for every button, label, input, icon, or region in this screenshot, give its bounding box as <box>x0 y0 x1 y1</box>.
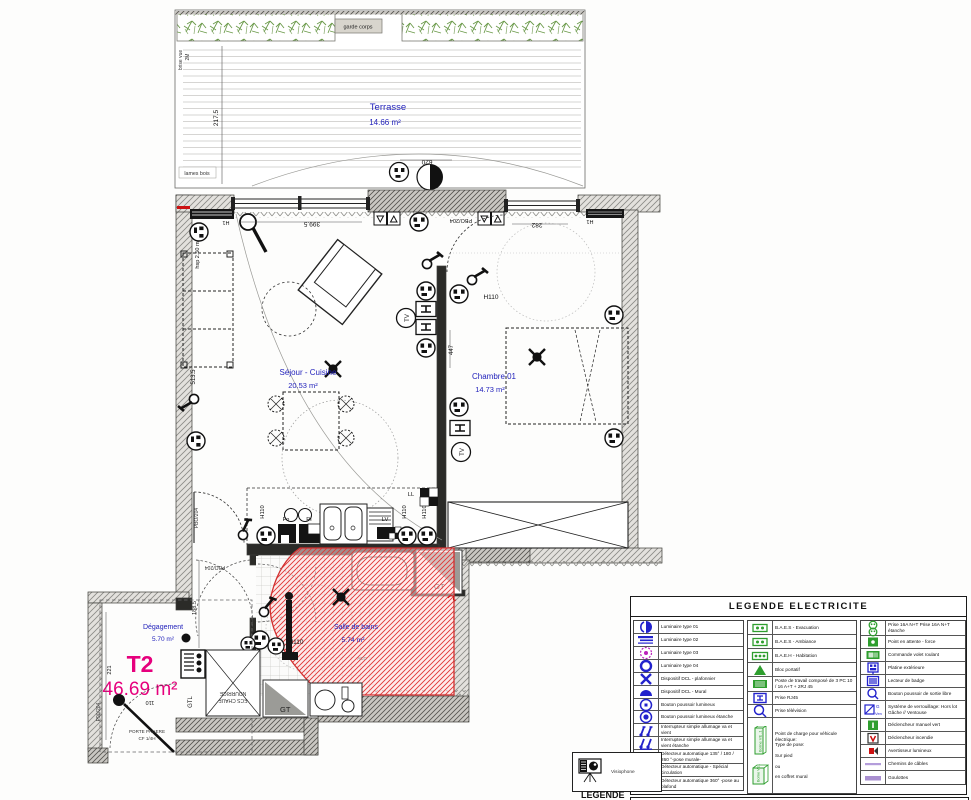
borne-icon: Borne VE .1 Borne VE .1 <box>748 718 773 793</box>
unit-area: 46.69 m² <box>103 679 178 700</box>
room-area-sejour: 20.53 m² <box>288 381 318 390</box>
outlet-sejour-east-1 <box>417 282 435 300</box>
legend-label: Poste de travail composé de 3 PC 10 / 16… <box>773 678 856 689</box>
ecs-label: ECS CHAUF <box>219 697 248 703</box>
door-sejour-degagement <box>194 492 244 543</box>
heater-h1-chambre-label: H1 <box>586 218 593 224</box>
baeh-icon <box>748 649 773 662</box>
volet-switch-chambre <box>478 212 504 225</box>
legend-label: Avertisseur lumineux <box>886 748 933 754</box>
tv-outlet-sejour: TV <box>397 309 416 328</box>
switch-chambre <box>467 268 488 285</box>
svg-text:Borne VE .1: Borne VE .1 <box>758 729 763 751</box>
tv-label-sejour: TV <box>405 314 411 322</box>
gtl-panel: GTL <box>181 650 205 708</box>
room-area-chambre: 14.73 m² <box>475 385 505 394</box>
legend-label: Système de verrouillage: Hors lot Gâche … <box>886 704 965 715</box>
room-area-sdb: 5.74 m² <box>341 637 365 644</box>
gt-box-entry: GT <box>263 680 308 717</box>
legend-row: B.A.E.S - Evacuation <box>748 621 856 635</box>
legend-label: Détecteur automatique 360° -pose au plaf… <box>659 778 743 789</box>
legend-label: Point de charge pour véhiculeélectrique:… <box>773 731 839 780</box>
door-label-pbo-sejour: PBO/204 <box>194 508 200 529</box>
legend-label: Interrupteur simple allumage va et vient <box>659 724 743 735</box>
legend-electricite: LEGENDE ELECTRICITE Luminaire type 01Lum… <box>630 596 967 795</box>
declVert-icon <box>861 719 886 731</box>
sejour-cuisine: H1 399.5 TV Séjour - Cuisine 20.53 m² <box>177 206 443 540</box>
legend-label: Goulottes <box>886 775 910 781</box>
declInc-icon <box>861 732 886 744</box>
outlet-kitchen-2-label: H110 <box>402 505 408 518</box>
baes-icon <box>748 621 773 634</box>
bloc-icon <box>748 663 773 676</box>
window-chambre <box>504 199 580 212</box>
garde-corps-label: garde corps <box>343 25 372 31</box>
outlet-sejour-west-2 <box>187 432 205 450</box>
oven-label: Fo <box>283 517 290 523</box>
window-chambre-pbo: PBO/204 <box>450 217 472 223</box>
rj45-chambre <box>450 421 470 436</box>
outlet-chambre-3 <box>605 429 623 447</box>
chambre: PBO/204 282 H1 H110 Chambre 01 14.73 m² … <box>447 209 628 548</box>
dim-217-5: 217.5 <box>213 109 220 126</box>
acc-label: ACC <box>357 656 367 661</box>
visiophone-label: Visiophone <box>611 770 635 775</box>
switch-kitchen <box>232 516 258 541</box>
lum02-icon <box>634 634 659 646</box>
legend-label: Détecteur automatique 135° / 180 / 260 °… <box>659 751 743 762</box>
outlet-kitchen-3 <box>418 527 436 545</box>
hsp-label: hsp 2.50 m <box>195 241 201 269</box>
porte-paliere-label1: PORTE PALIERE <box>129 729 165 734</box>
porte-paliere-label2: CF 1/4H <box>138 736 155 741</box>
legend-row: Bloc portatif <box>748 663 856 677</box>
door-pbo-bath-label: PBO/204 <box>205 564 226 570</box>
lum03-icon <box>634 647 659 659</box>
outlet-chambre-2 <box>605 306 623 324</box>
wardrobe <box>448 502 628 548</box>
baes-icon <box>748 635 773 648</box>
intSimpleEt-icon <box>634 737 659 749</box>
cmdVolet-icon <box>861 649 886 661</box>
hob-label: PI <box>306 517 312 523</box>
outlet-kitchen-2 <box>398 527 416 545</box>
bp-lumineux-2 <box>268 638 284 654</box>
kitchen-circle <box>282 400 398 516</box>
washing-machine: LL <box>408 488 438 506</box>
planter-left <box>177 14 335 41</box>
armchair <box>298 240 382 325</box>
unit-label: T2 <box>127 651 154 677</box>
outlet-kitchen-3-label: H110 <box>422 505 428 518</box>
room-label-terrasse: Terrasse <box>370 102 406 113</box>
brise-vue-2m: 2M <box>185 54 191 61</box>
room-label-sdb: Salle de bains <box>334 624 378 631</box>
legend-label: Dispositif DCL - Mural <box>659 689 708 695</box>
badge-icon <box>861 675 886 687</box>
legend-row: Goulottes <box>861 771 965 784</box>
legend-label: B.A.E.S - Ambiance <box>773 639 818 645</box>
planter-right <box>402 14 583 41</box>
legend-bottom-word: LEGENDE <box>581 790 625 800</box>
dcl-degagement <box>182 634 191 643</box>
outlet-sejour-east-2 <box>417 339 435 357</box>
bpLumEt-icon <box>634 711 659 723</box>
lames-bois-label: lames bois <box>184 171 210 177</box>
tv-icon <box>748 705 773 717</box>
legend-label: Platine extérieure <box>886 665 926 671</box>
svg-text:Borne VE .1: Borne VE .1 <box>757 764 761 782</box>
lum04-icon <box>634 660 659 672</box>
legend-label: Point en attente - force <box>886 639 937 645</box>
legend-row: Poste de travail composé de 3 PC 10 / 16… <box>748 677 856 692</box>
kitchen: PBO/204 H110 Fo PI H180 LV H110 H110 LL <box>194 488 438 545</box>
rj45-icon <box>748 692 773 704</box>
legend-row: Prise 16A N+T Prise 16A N+T étanche <box>861 621 965 636</box>
room-label-sejour: Séjour - Cuisine <box>280 368 337 377</box>
legend-row: GVenSystème de verrouillage: Hors lot Gâ… <box>861 701 965 719</box>
legend-label: B.A.E.S - Evacuation <box>773 625 821 631</box>
dim-221: 221 <box>107 665 113 674</box>
bed <box>506 328 628 424</box>
sink <box>320 504 367 544</box>
legend-row: Interrupteur simple allumage va et vient… <box>634 737 743 750</box>
dclPlaf-icon <box>634 673 659 685</box>
legend-label: Luminaire type 03 <box>659 650 700 656</box>
svg-text:Ven: Ven <box>875 711 882 716</box>
legend-row: Chemins de câbles <box>861 758 965 771</box>
legend-label: Luminaire type 01 <box>659 624 700 630</box>
gtl-label: GTL <box>188 696 194 708</box>
dishwasher-label: LV <box>382 517 389 523</box>
heater-h1-sejour-label: H1 <box>222 219 229 225</box>
legend-row: B.A.E.H - Habitation <box>748 649 856 663</box>
volet-switch-sejour <box>374 212 400 225</box>
dcl-chambre <box>529 349 545 365</box>
legend-label: Luminaire type 04 <box>659 663 700 669</box>
legend-column-2: B.A.E.S - EvacuationB.A.E.S - AmbianceB.… <box>747 620 857 794</box>
legend-row: Prise télévision <box>748 705 856 718</box>
avert-icon <box>861 745 886 757</box>
legend-label: Déclencheur incendie <box>886 735 935 741</box>
legend-column-3: Prise 16A N+T Prise 16A N+T étanchePoint… <box>860 620 966 785</box>
dim-513-5: 513.5 <box>191 369 197 385</box>
bpLum-icon <box>634 699 659 710</box>
nourrice-label: NOURRICE <box>219 690 246 696</box>
gt-entry-label: GT <box>280 705 291 714</box>
lum01-icon <box>634 621 659 633</box>
outlet-sejour-west-1 <box>190 223 208 241</box>
door-p90-label: P90/204 <box>96 702 102 721</box>
tv-outlet-chambre: TV <box>452 443 471 462</box>
outlet-kitchen-1 <box>257 527 275 545</box>
legend-label: B.A.E.H - Habitation <box>773 653 819 659</box>
legend-label: Luminaire type 02 <box>659 637 700 643</box>
dclMural-icon <box>634 686 659 698</box>
visiophone-box: Visiophone <box>572 752 662 792</box>
legend-row: Borne VE .1 Borne VE .1 Point de charge … <box>748 718 856 793</box>
dim-399-5: 399.5 <box>303 220 320 227</box>
platine-icon <box>861 662 886 674</box>
chemins-icon <box>861 758 886 770</box>
legend-label: Bouton poussoir lumineux <box>659 702 717 708</box>
bpSortie-icon <box>861 688 886 700</box>
legend-label: Bouton poussoir lumineux étanche <box>659 714 735 720</box>
dim-188-5: 188.5 <box>192 601 198 615</box>
dim-110: 110 <box>146 699 155 705</box>
room-area-terrasse: 14.66 m² <box>369 118 401 127</box>
legend-label: Lecteur de badge <box>886 678 927 684</box>
rj45-sejour-2 <box>416 320 436 335</box>
legend-label: Prise RJ45 <box>773 695 800 701</box>
legend-label: Interrupteur simple allumage va et vient… <box>659 737 743 748</box>
vanity <box>310 683 362 716</box>
legend-row: Bouton poussoir de sortie libre <box>861 688 965 701</box>
legend-label: Bouton poussoir de sortie libre <box>886 691 953 697</box>
brise-vue-label: brise vue <box>178 50 184 71</box>
room-label-degagement: Dégagement <box>143 624 183 631</box>
legend-label: Prise 16A N+T Prise 16A N+T étanche <box>886 622 965 633</box>
goulottes-icon <box>861 771 886 784</box>
heater-h1-chambre <box>586 209 624 218</box>
pointAttente-icon <box>861 636 886 648</box>
outlet-chambre-1-label: H110 <box>483 294 498 301</box>
terrace-luminaire-03-icon <box>390 163 409 182</box>
legend-title: LEGENDE ELECTRICITE <box>631 597 966 617</box>
tv-label-chambre: TV <box>460 448 466 456</box>
outlet-chambre-1 <box>450 285 468 303</box>
prise16-icon <box>861 621 886 635</box>
washing-machine-label: LL <box>408 492 415 498</box>
legend-row: B.A.E.S - Ambiance <box>748 635 856 649</box>
room-area-degagement: 5.70 m² <box>152 636 175 643</box>
closet-nourrice: NOURRICE ECS CHAUF <box>206 650 260 716</box>
room-label-chambre: Chambre 01 <box>472 372 517 381</box>
window-sejour <box>231 196 370 210</box>
poste-icon <box>748 677 773 691</box>
outlet-sejour-top <box>410 213 428 231</box>
rj45-sejour-1 <box>416 302 436 317</box>
verrou-icon: GVen <box>861 701 886 718</box>
chambre-circle <box>497 223 595 321</box>
svg-text:G: G <box>876 704 880 709</box>
legend-label: Dispositif DCL - plafonnier <box>659 676 717 682</box>
legend-label: Prise télévision <box>773 708 809 714</box>
dim-282: 282 <box>531 221 542 228</box>
dining-table <box>268 392 354 450</box>
floorplan-page: { "colors": { "room_label": "#2222bb", "… <box>0 0 971 800</box>
legend-label: Chemins de câbles <box>886 761 930 767</box>
outlet-kitchen-1-label: H110 <box>260 505 266 518</box>
dim-447: 447 <box>449 344 455 355</box>
legend-label: Bloc portatif <box>773 667 802 673</box>
terrace: garde corps 217.5 brise vue 2M Terrasse … <box>175 10 585 190</box>
intSimple-icon <box>634 724 659 736</box>
bp-lumineux-1 <box>241 637 255 651</box>
visiophone-icon <box>577 755 607 790</box>
legend-label: Déclencheur manuel vert <box>886 722 942 728</box>
heater-h1-sejour <box>190 209 234 219</box>
legend-label: Commande volet roulant <box>886 652 941 658</box>
legend-label: Détecteur automatique - Spécial circulat… <box>659 764 743 775</box>
outlet-chambre-4 <box>450 398 468 416</box>
